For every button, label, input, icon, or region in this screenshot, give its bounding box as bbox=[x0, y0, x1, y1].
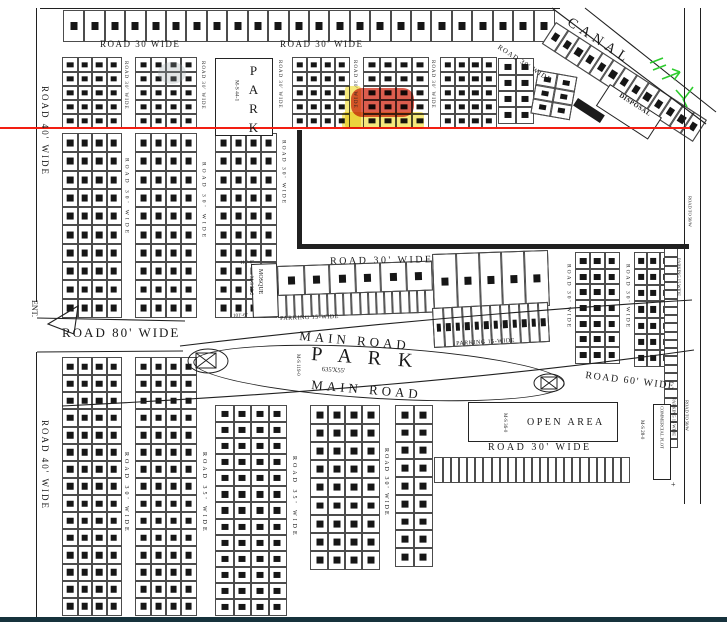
plot-cell bbox=[435, 458, 443, 482]
plot-cell bbox=[469, 114, 483, 128]
plot-cell bbox=[107, 495, 122, 512]
plot-cell bbox=[261, 171, 276, 189]
plot-cell bbox=[269, 583, 287, 599]
plot-cell bbox=[234, 502, 252, 518]
plot-cell bbox=[166, 495, 181, 512]
plot-cell bbox=[441, 86, 455, 100]
plot-cell bbox=[231, 134, 246, 152]
plot-cell bbox=[475, 458, 483, 482]
plot-cell bbox=[605, 347, 619, 363]
thick-border-vertical bbox=[297, 130, 302, 249]
plot-cell bbox=[508, 458, 516, 482]
plot-cell bbox=[307, 86, 321, 100]
plot-cell bbox=[665, 340, 677, 348]
plot-cell bbox=[540, 458, 548, 482]
plot-cell bbox=[216, 299, 231, 317]
plot-cell bbox=[635, 269, 647, 285]
plot-cell bbox=[166, 375, 181, 392]
road-30-v4-label: ROAD 30' WIDE bbox=[352, 60, 357, 109]
plot-cell bbox=[251, 583, 269, 599]
plot-cell bbox=[63, 244, 78, 262]
road-30-b2-label: ROAD 30' WIDE bbox=[383, 448, 389, 517]
plot-cell bbox=[580, 458, 588, 482]
plot-cell bbox=[499, 107, 516, 123]
plot-cell bbox=[391, 11, 411, 41]
plot-cell bbox=[513, 11, 533, 41]
plot-cell bbox=[216, 567, 234, 583]
plot-cell bbox=[576, 347, 590, 363]
plot-cell bbox=[311, 497, 328, 515]
plot-cell bbox=[166, 512, 181, 529]
plot-cell bbox=[647, 334, 659, 350]
park-top-label: PARK bbox=[247, 63, 260, 139]
plot-cell bbox=[107, 244, 122, 262]
plot-cell bbox=[151, 478, 166, 495]
road-80-upper-edge bbox=[37, 318, 185, 321]
plot-cell bbox=[166, 444, 181, 461]
plot-cell bbox=[293, 114, 307, 128]
plot-cell bbox=[136, 546, 151, 563]
plot-cell bbox=[362, 424, 379, 442]
plot-cell bbox=[136, 461, 151, 478]
plot-cell bbox=[605, 332, 619, 348]
plot-cell bbox=[576, 269, 590, 285]
plot-cell bbox=[181, 512, 196, 529]
plot-cell bbox=[151, 444, 166, 461]
plot-cell bbox=[216, 406, 234, 422]
plot-cell bbox=[181, 427, 196, 444]
commercial-plot-label: COMMERCIAL PLOT bbox=[659, 406, 664, 449]
plot-cell bbox=[151, 225, 166, 243]
plot-cell bbox=[151, 280, 166, 298]
plot-cell bbox=[251, 599, 269, 615]
plot-cell bbox=[78, 358, 93, 375]
plot-cell bbox=[234, 583, 252, 599]
plot-cell bbox=[251, 470, 269, 486]
plot-cell bbox=[328, 533, 345, 551]
plot-cell bbox=[107, 114, 122, 128]
plot-cell bbox=[216, 535, 234, 551]
thick-border-horizontal bbox=[297, 244, 689, 249]
plot-cell bbox=[589, 458, 597, 482]
plot-cell bbox=[181, 495, 196, 512]
plot-cell bbox=[412, 86, 428, 100]
plot-cell bbox=[107, 189, 122, 207]
plot-cell bbox=[78, 280, 93, 298]
plot-cell bbox=[469, 58, 483, 72]
plot-cell bbox=[269, 470, 287, 486]
plot-cell bbox=[564, 458, 572, 482]
plot-cell bbox=[605, 458, 613, 482]
plot-cell bbox=[92, 58, 107, 72]
plot-cell bbox=[136, 358, 151, 375]
plot-cell bbox=[396, 513, 414, 531]
plot-cell bbox=[136, 581, 151, 598]
plot-cell bbox=[492, 458, 500, 482]
plot-cell bbox=[107, 427, 122, 444]
plot-cell bbox=[269, 502, 287, 518]
plot-cell bbox=[78, 409, 93, 426]
road-30-b1-label: ROAD 30' WIDE bbox=[123, 452, 129, 534]
plot-cell bbox=[269, 535, 287, 551]
plot-cell bbox=[483, 458, 491, 482]
plot-cell bbox=[414, 442, 432, 460]
plot-cell bbox=[92, 189, 107, 207]
plot-cell bbox=[501, 252, 526, 307]
bottom-bar bbox=[0, 617, 727, 622]
mosque-ms-label: M-S 39-2 bbox=[248, 276, 253, 295]
plot-block-t7 bbox=[530, 70, 577, 120]
plot-cell bbox=[665, 315, 677, 323]
plot-cell bbox=[78, 495, 93, 512]
plot-cell bbox=[151, 171, 166, 189]
plot-cell bbox=[597, 458, 605, 482]
plot-cell bbox=[482, 58, 496, 72]
plot-cell bbox=[590, 300, 604, 316]
plot-cell bbox=[556, 458, 564, 482]
plot-cell bbox=[63, 134, 78, 152]
plot-cell bbox=[414, 548, 432, 566]
park-ms-label: M-S 119-0 bbox=[295, 354, 300, 376]
plot-block-b4 bbox=[310, 405, 380, 570]
plot-cell bbox=[92, 114, 107, 128]
road-30-v6-label: ROAD 30' WIDE bbox=[123, 158, 129, 236]
plot-cell bbox=[572, 458, 580, 482]
plot-cell bbox=[665, 332, 677, 340]
plot-cell bbox=[151, 358, 166, 375]
plot-block-m2 bbox=[135, 133, 197, 318]
plot-cell bbox=[92, 244, 107, 262]
plot-cell bbox=[181, 280, 196, 298]
plot-cell bbox=[455, 72, 469, 86]
plot-cell bbox=[328, 478, 345, 496]
plot-cell bbox=[293, 86, 307, 100]
plot-cell bbox=[304, 265, 330, 294]
plot-cell bbox=[665, 323, 677, 331]
plot-cell bbox=[479, 253, 504, 308]
plot-cell bbox=[414, 513, 432, 531]
plot-cell bbox=[524, 458, 532, 482]
plot-cell bbox=[231, 171, 246, 189]
plot-cell bbox=[136, 100, 151, 114]
plot-cell bbox=[216, 470, 234, 486]
plot-cell bbox=[136, 207, 151, 225]
plot-cell bbox=[92, 409, 107, 426]
plot-cell bbox=[181, 171, 196, 189]
plot-cell bbox=[107, 262, 122, 280]
plot-cell bbox=[151, 529, 166, 546]
plot-cell bbox=[166, 409, 181, 426]
road-30-v8-label: ROAD 30' WIDE bbox=[280, 140, 286, 205]
plot-cell bbox=[107, 375, 122, 392]
plot-cell bbox=[328, 515, 345, 533]
plot-cell bbox=[136, 512, 151, 529]
plot-cell bbox=[63, 207, 78, 225]
plot-cell bbox=[216, 280, 231, 298]
plot-cell bbox=[92, 280, 107, 298]
plot-cell bbox=[64, 11, 84, 41]
open-area-label: OPEN AREA bbox=[527, 418, 605, 428]
plot-cell bbox=[166, 262, 181, 280]
plot-cell bbox=[321, 86, 335, 100]
plot-cell bbox=[414, 530, 432, 548]
plot-cell bbox=[78, 207, 93, 225]
plot-cell bbox=[328, 442, 345, 460]
plot-cell bbox=[362, 551, 379, 569]
road-60-label: ROAD 60' WIDE bbox=[585, 371, 676, 392]
plot-cell bbox=[246, 225, 261, 243]
plot-block-b1 bbox=[62, 357, 122, 616]
plot-cell bbox=[107, 392, 122, 409]
plot-cell bbox=[181, 392, 196, 409]
plot-cell bbox=[151, 409, 166, 426]
plot-cell bbox=[328, 460, 345, 478]
ent-label: ENT. bbox=[30, 300, 38, 317]
plot-cell bbox=[251, 422, 269, 438]
plot-block-b5 bbox=[395, 405, 433, 567]
plot-cell bbox=[166, 11, 186, 41]
plot-cell bbox=[396, 530, 414, 548]
plot-cell bbox=[231, 225, 246, 243]
plot-cell bbox=[151, 392, 166, 409]
plot-cell bbox=[234, 535, 252, 551]
plot-cell bbox=[136, 409, 151, 426]
plot-cell bbox=[414, 406, 432, 424]
park-top-box bbox=[215, 58, 273, 136]
plot-cell bbox=[107, 478, 122, 495]
plot-cell bbox=[396, 424, 414, 442]
plot-cell bbox=[151, 152, 166, 170]
plot-cell bbox=[532, 99, 553, 116]
plot-cell bbox=[166, 225, 181, 243]
plot-cell bbox=[467, 458, 475, 482]
plot-cell bbox=[166, 207, 181, 225]
plot-cell bbox=[181, 529, 196, 546]
plot-cell bbox=[516, 458, 524, 482]
plot-cell bbox=[151, 299, 166, 317]
plot-cell bbox=[431, 11, 451, 41]
plot-cell bbox=[181, 207, 196, 225]
plot-cell bbox=[231, 152, 246, 170]
plot-cell bbox=[590, 332, 604, 348]
plot-cell bbox=[107, 207, 122, 225]
plot-cell bbox=[181, 189, 196, 207]
plot-cell bbox=[78, 478, 93, 495]
plot-cell bbox=[227, 11, 247, 41]
plot-cell bbox=[136, 244, 151, 262]
pencil-smudge bbox=[158, 62, 186, 84]
plot-cell bbox=[251, 406, 269, 422]
selected-plots-red[interactable] bbox=[351, 88, 414, 117]
plot-cell bbox=[136, 375, 151, 392]
plot-cell bbox=[181, 478, 196, 495]
plot-cell bbox=[665, 365, 677, 373]
plot-cell bbox=[311, 551, 328, 569]
plot-cell bbox=[92, 72, 107, 86]
plot-cell bbox=[345, 442, 362, 460]
plot-cell bbox=[63, 461, 78, 478]
plot-cell bbox=[345, 533, 362, 551]
plot-cell bbox=[151, 262, 166, 280]
plot-cell bbox=[92, 358, 107, 375]
plot-cell bbox=[251, 551, 269, 567]
plot-cell bbox=[590, 316, 604, 332]
plot-cell bbox=[441, 72, 455, 86]
plot-cell bbox=[78, 427, 93, 444]
plot-row-top bbox=[63, 10, 555, 42]
plot-cell bbox=[166, 100, 181, 114]
plot-cell bbox=[107, 280, 122, 298]
plot-cell bbox=[309, 11, 329, 41]
corridor-line-2 bbox=[700, 8, 701, 504]
plot-cell bbox=[635, 350, 647, 366]
parking-right-top-label: PARKING 15 WIDE bbox=[676, 258, 681, 296]
plot-cell bbox=[469, 100, 483, 114]
road-80-lower-edge bbox=[37, 351, 183, 352]
plot-cell bbox=[469, 86, 483, 100]
plot-cell bbox=[166, 392, 181, 409]
plot-cell bbox=[216, 599, 234, 615]
plot-cell bbox=[345, 424, 362, 442]
plot-cell bbox=[500, 458, 508, 482]
road-40-bottom-label: ROAD 40' WIDE bbox=[40, 420, 49, 510]
plot-cell bbox=[311, 424, 328, 442]
plot-cell bbox=[576, 300, 590, 316]
plot-cell bbox=[455, 114, 469, 128]
plot-cell bbox=[370, 11, 390, 41]
plot-block-b3 bbox=[215, 405, 287, 616]
plot-cell bbox=[166, 189, 181, 207]
plot-cell bbox=[441, 100, 455, 114]
plot-cell bbox=[181, 598, 196, 615]
plot-cell bbox=[107, 225, 122, 243]
park-top-ms-label: M-S 44-1 bbox=[233, 80, 239, 101]
plot-cell bbox=[396, 58, 412, 72]
plot-cell bbox=[63, 189, 78, 207]
plot-cell bbox=[166, 299, 181, 317]
plot-cell bbox=[345, 497, 362, 515]
plot-cell bbox=[92, 512, 107, 529]
plot-cell bbox=[136, 171, 151, 189]
plot-cell bbox=[251, 438, 269, 454]
plot-cell bbox=[151, 189, 166, 207]
plot-cell bbox=[433, 254, 458, 309]
plot-cell bbox=[472, 11, 492, 41]
plot-cell bbox=[307, 72, 321, 86]
plot-cell bbox=[92, 529, 107, 546]
plot-cell bbox=[125, 11, 145, 41]
plot-cell bbox=[441, 114, 455, 128]
plot-cell bbox=[63, 299, 78, 317]
plot-cell bbox=[181, 225, 196, 243]
plot-cell bbox=[405, 262, 431, 291]
plot-cell bbox=[92, 207, 107, 225]
plot-cell bbox=[136, 299, 151, 317]
plot-cell bbox=[396, 442, 414, 460]
plot-cell bbox=[216, 583, 234, 599]
plot-cell bbox=[136, 86, 151, 100]
plot-cell bbox=[136, 478, 151, 495]
plot-cell bbox=[63, 495, 78, 512]
plot-cell bbox=[613, 458, 621, 482]
plot-cell bbox=[151, 134, 166, 152]
plot-cell bbox=[550, 102, 571, 119]
plot-cell bbox=[107, 564, 122, 581]
plot-cell bbox=[451, 458, 459, 482]
plot-cell bbox=[107, 461, 122, 478]
plot-cell bbox=[63, 100, 78, 114]
plot-cell bbox=[78, 58, 93, 72]
plot-cell bbox=[455, 86, 469, 100]
plot-cell bbox=[216, 422, 234, 438]
ms-28-label: M-S 28-0 bbox=[639, 420, 644, 439]
plot-block-r1 bbox=[575, 252, 620, 364]
road-30-v2-label: ROAD 30' WIDE bbox=[200, 61, 205, 110]
plot-cell bbox=[396, 72, 412, 86]
road-to-50w-bottom-label: ROAD TO 50/W bbox=[684, 400, 689, 431]
plot-cell bbox=[92, 546, 107, 563]
open-area-ms-label: M-S 36-0 bbox=[502, 413, 507, 432]
plot-cell bbox=[63, 598, 78, 615]
plot-cell bbox=[216, 551, 234, 567]
plot-cell bbox=[321, 114, 335, 128]
plot-cell bbox=[78, 189, 93, 207]
plot-cell bbox=[269, 567, 287, 583]
plot-cell bbox=[151, 495, 166, 512]
plot-cell bbox=[166, 86, 181, 100]
plot-cell bbox=[78, 564, 93, 581]
plot-cell bbox=[166, 478, 181, 495]
plot-cell bbox=[234, 454, 252, 470]
road-30-v7-label: ROAD 30' WIDE bbox=[200, 162, 206, 240]
plot-cell bbox=[136, 114, 151, 128]
plot-cell bbox=[396, 406, 414, 424]
plot-cell bbox=[216, 438, 234, 454]
plot-cell bbox=[78, 152, 93, 170]
plot-cell bbox=[411, 11, 431, 41]
plot-cell bbox=[269, 454, 287, 470]
plot-cell bbox=[261, 134, 276, 152]
plot-cell bbox=[136, 495, 151, 512]
plot-cell bbox=[311, 515, 328, 533]
plot-cell bbox=[231, 207, 246, 225]
plot-cell bbox=[482, 100, 496, 114]
stalls-row-openarea bbox=[434, 457, 630, 483]
plot-cell bbox=[269, 486, 287, 502]
plot-cell bbox=[78, 262, 93, 280]
plot-cell bbox=[166, 280, 181, 298]
plot-cell bbox=[78, 512, 93, 529]
plot-cell bbox=[166, 427, 181, 444]
boundary-top bbox=[40, 8, 560, 9]
plot-cell bbox=[576, 316, 590, 332]
plot-cell bbox=[78, 461, 93, 478]
road-to-50w-top-label: ROAD TO 50/W bbox=[687, 196, 692, 227]
plot-cell bbox=[234, 551, 252, 567]
plot-block-m1 bbox=[62, 133, 122, 318]
plot-cell bbox=[181, 299, 196, 317]
plot-cell bbox=[136, 529, 151, 546]
plot-cell bbox=[151, 512, 166, 529]
plot-cell bbox=[92, 392, 107, 409]
plot-cell bbox=[246, 207, 261, 225]
plot-cell bbox=[63, 427, 78, 444]
plot-cell bbox=[151, 461, 166, 478]
plot-cell bbox=[665, 307, 677, 315]
plot-cell bbox=[362, 460, 379, 478]
plot-cell bbox=[181, 100, 196, 114]
plot-cell bbox=[63, 152, 78, 170]
